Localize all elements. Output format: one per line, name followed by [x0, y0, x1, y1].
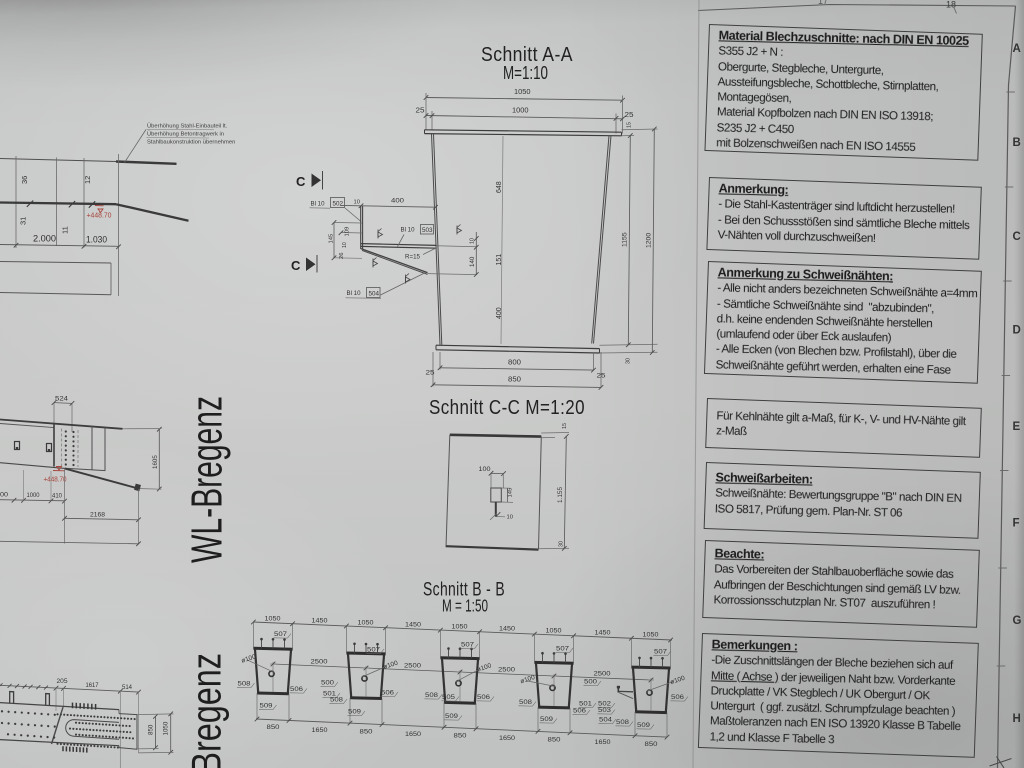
svg-text:506: 506 — [290, 686, 304, 693]
svg-text:400: 400 — [391, 198, 404, 205]
svg-text:10: 10 — [507, 515, 513, 521]
svg-text:507: 507 — [556, 646, 570, 653]
svg-text:A: A — [1013, 43, 1021, 55]
svg-text:1050: 1050 — [546, 627, 562, 634]
svg-text:30: 30 — [559, 541, 565, 547]
svg-text:1650: 1650 — [499, 735, 515, 742]
svg-text:25: 25 — [625, 112, 634, 119]
svg-text:1050: 1050 — [265, 615, 281, 622]
svg-text:506: 506 — [573, 708, 587, 715]
svg-text:10: 10 — [342, 242, 348, 248]
svg-text:ø100: ø100 — [519, 674, 536, 685]
svg-text:850: 850 — [645, 741, 658, 748]
svg-text:1155: 1155 — [622, 232, 629, 247]
svg-text:850: 850 — [508, 377, 521, 384]
svg-text:E: E — [1013, 421, 1021, 433]
svg-text:2500: 2500 — [404, 663, 421, 670]
svg-text:Bl 10: Bl 10 — [311, 202, 326, 208]
svg-text:100: 100 — [479, 466, 492, 473]
svg-text:2500: 2500 — [594, 671, 611, 678]
svg-text:H: H — [1013, 713, 1021, 725]
svg-text:500: 500 — [321, 680, 335, 687]
svg-text:850: 850 — [360, 728, 373, 735]
svg-text:1000: 1000 — [27, 492, 40, 499]
svg-text:G: G — [1013, 615, 1022, 627]
svg-text:507: 507 — [367, 647, 381, 654]
svg-text:507: 507 — [461, 642, 475, 649]
svg-text:C: C — [296, 174, 306, 189]
svg-text:1650: 1650 — [405, 731, 421, 738]
svg-text:850: 850 — [148, 724, 155, 735]
svg-text:1.155: 1.155 — [557, 487, 564, 503]
svg-text:506: 506 — [671, 694, 685, 701]
svg-text:1450: 1450 — [405, 621, 421, 628]
svg-text:506: 506 — [477, 694, 491, 701]
svg-text:30: 30 — [626, 358, 632, 364]
svg-text:1450: 1450 — [312, 617, 328, 624]
svg-text:410: 410 — [52, 493, 62, 500]
svg-text:Bl 10: Bl 10 — [347, 291, 362, 297]
svg-text:509: 509 — [445, 713, 459, 720]
svg-text:C: C — [291, 258, 301, 273]
svg-text:1605: 1605 — [152, 455, 159, 469]
svg-text:11: 11 — [61, 226, 70, 234]
svg-text:1050: 1050 — [358, 619, 374, 626]
svg-text:503: 503 — [422, 227, 433, 234]
svg-text:145: 145 — [508, 488, 514, 498]
svg-text:Schnitt C-C M=1:20: Schnitt C-C M=1:20 — [429, 396, 585, 419]
svg-text:2500: 2500 — [498, 667, 515, 674]
svg-text:508: 508 — [425, 692, 439, 699]
svg-text:31: 31 — [19, 217, 28, 225]
svg-text:109: 109 — [345, 227, 351, 237]
svg-text:1000: 1000 — [512, 108, 529, 115]
svg-text:+448.70: +448.70 — [44, 475, 67, 484]
svg-text:205: 205 — [57, 678, 69, 685]
svg-text:1450: 1450 — [499, 625, 515, 632]
svg-text:1650: 1650 — [312, 727, 328, 734]
svg-text:Überhöhung Betontragwerk in: Überhöhung Betontragwerk in — [147, 131, 224, 138]
svg-text:1617: 1617 — [86, 682, 100, 689]
svg-text:509: 509 — [260, 703, 274, 710]
svg-text:1.030: 1.030 — [86, 235, 107, 246]
svg-text:Stahlbaukonstruktion übernehme: Stahlbaukonstruktion übernehmen — [147, 140, 235, 146]
svg-text:B: B — [1013, 137, 1021, 149]
svg-text:1050: 1050 — [452, 623, 468, 630]
svg-text:10: 10 — [470, 238, 476, 244]
svg-text:648: 648 — [496, 181, 503, 193]
svg-text:400: 400 — [496, 307, 503, 319]
svg-text:M=1:10: M=1:10 — [503, 63, 548, 83]
svg-text:1200: 1200 — [646, 233, 653, 248]
svg-text:R=15: R=15 — [405, 254, 421, 261]
svg-text:ø100: ø100 — [669, 675, 686, 686]
svg-text:514: 514 — [122, 684, 133, 691]
svg-text:151: 151 — [496, 254, 503, 266]
svg-text:ø100: ø100 — [240, 653, 257, 664]
svg-text:509: 509 — [637, 722, 651, 729]
svg-text:25: 25 — [416, 108, 425, 115]
svg-text:524: 524 — [55, 396, 68, 403]
svg-text:1050: 1050 — [163, 721, 170, 735]
svg-text:15: 15 — [562, 423, 568, 429]
svg-text:508: 508 — [519, 699, 533, 706]
svg-text:25: 25 — [426, 370, 435, 377]
svg-text:508: 508 — [238, 681, 252, 688]
svg-text:1050: 1050 — [514, 89, 531, 96]
svg-text:1450: 1450 — [595, 630, 611, 637]
svg-text:509: 509 — [540, 716, 554, 723]
svg-text:500: 500 — [584, 679, 598, 686]
svg-text:12: 12 — [83, 176, 92, 184]
svg-text:36: 36 — [20, 176, 29, 184]
svg-text:504: 504 — [599, 717, 613, 724]
svg-text:D: D — [1013, 325, 1021, 337]
svg-text:140: 140 — [469, 256, 476, 267]
svg-text:F: F — [1013, 518, 1020, 530]
svg-text:504: 504 — [369, 290, 380, 297]
svg-text:509: 509 — [348, 709, 362, 716]
svg-text:+448.70: +448.70 — [87, 211, 112, 220]
svg-text:850: 850 — [454, 733, 467, 740]
svg-text:2500: 2500 — [311, 659, 328, 666]
svg-text:508: 508 — [330, 697, 344, 704]
svg-text:850: 850 — [267, 724, 280, 731]
svg-text:17: 17 — [818, 0, 828, 6]
svg-text:850: 850 — [548, 737, 561, 744]
svg-text:15: 15 — [627, 122, 633, 128]
svg-text:Überhöhung Stahl-Einbauteil lt: Überhöhung Stahl-Einbauteil lt. — [147, 123, 228, 130]
svg-text:508: 508 — [616, 719, 630, 726]
svg-text:507: 507 — [654, 649, 668, 656]
svg-text:507: 507 — [274, 631, 288, 638]
svg-text:25: 25 — [597, 373, 606, 380]
svg-text:505: 505 — [442, 694, 456, 701]
svg-text:M = 1:50: M = 1:50 — [442, 596, 488, 616]
svg-text:506: 506 — [381, 690, 395, 697]
svg-text:1050: 1050 — [643, 632, 659, 639]
svg-text:800: 800 — [508, 360, 521, 367]
svg-text:26: 26 — [339, 253, 345, 259]
svg-text:503: 503 — [598, 707, 612, 714]
svg-text:501: 501 — [579, 701, 593, 708]
svg-text:145: 145 — [329, 234, 335, 244]
svg-text:Bl 10: Bl 10 — [401, 228, 416, 234]
svg-text:10: 10 — [354, 200, 360, 206]
svg-text:2168: 2168 — [90, 512, 105, 519]
svg-text:502: 502 — [333, 200, 344, 207]
svg-text:00: 00 — [0, 492, 9, 499]
svg-text:WL-Bregenz: WL-Bregenz — [183, 653, 230, 768]
svg-text:WL-Bregenz: WL-Bregenz — [183, 396, 232, 563]
svg-text:C: C — [1013, 231, 1021, 243]
svg-text:2.000: 2.000 — [33, 234, 56, 245]
svg-text:1650: 1650 — [595, 739, 611, 746]
